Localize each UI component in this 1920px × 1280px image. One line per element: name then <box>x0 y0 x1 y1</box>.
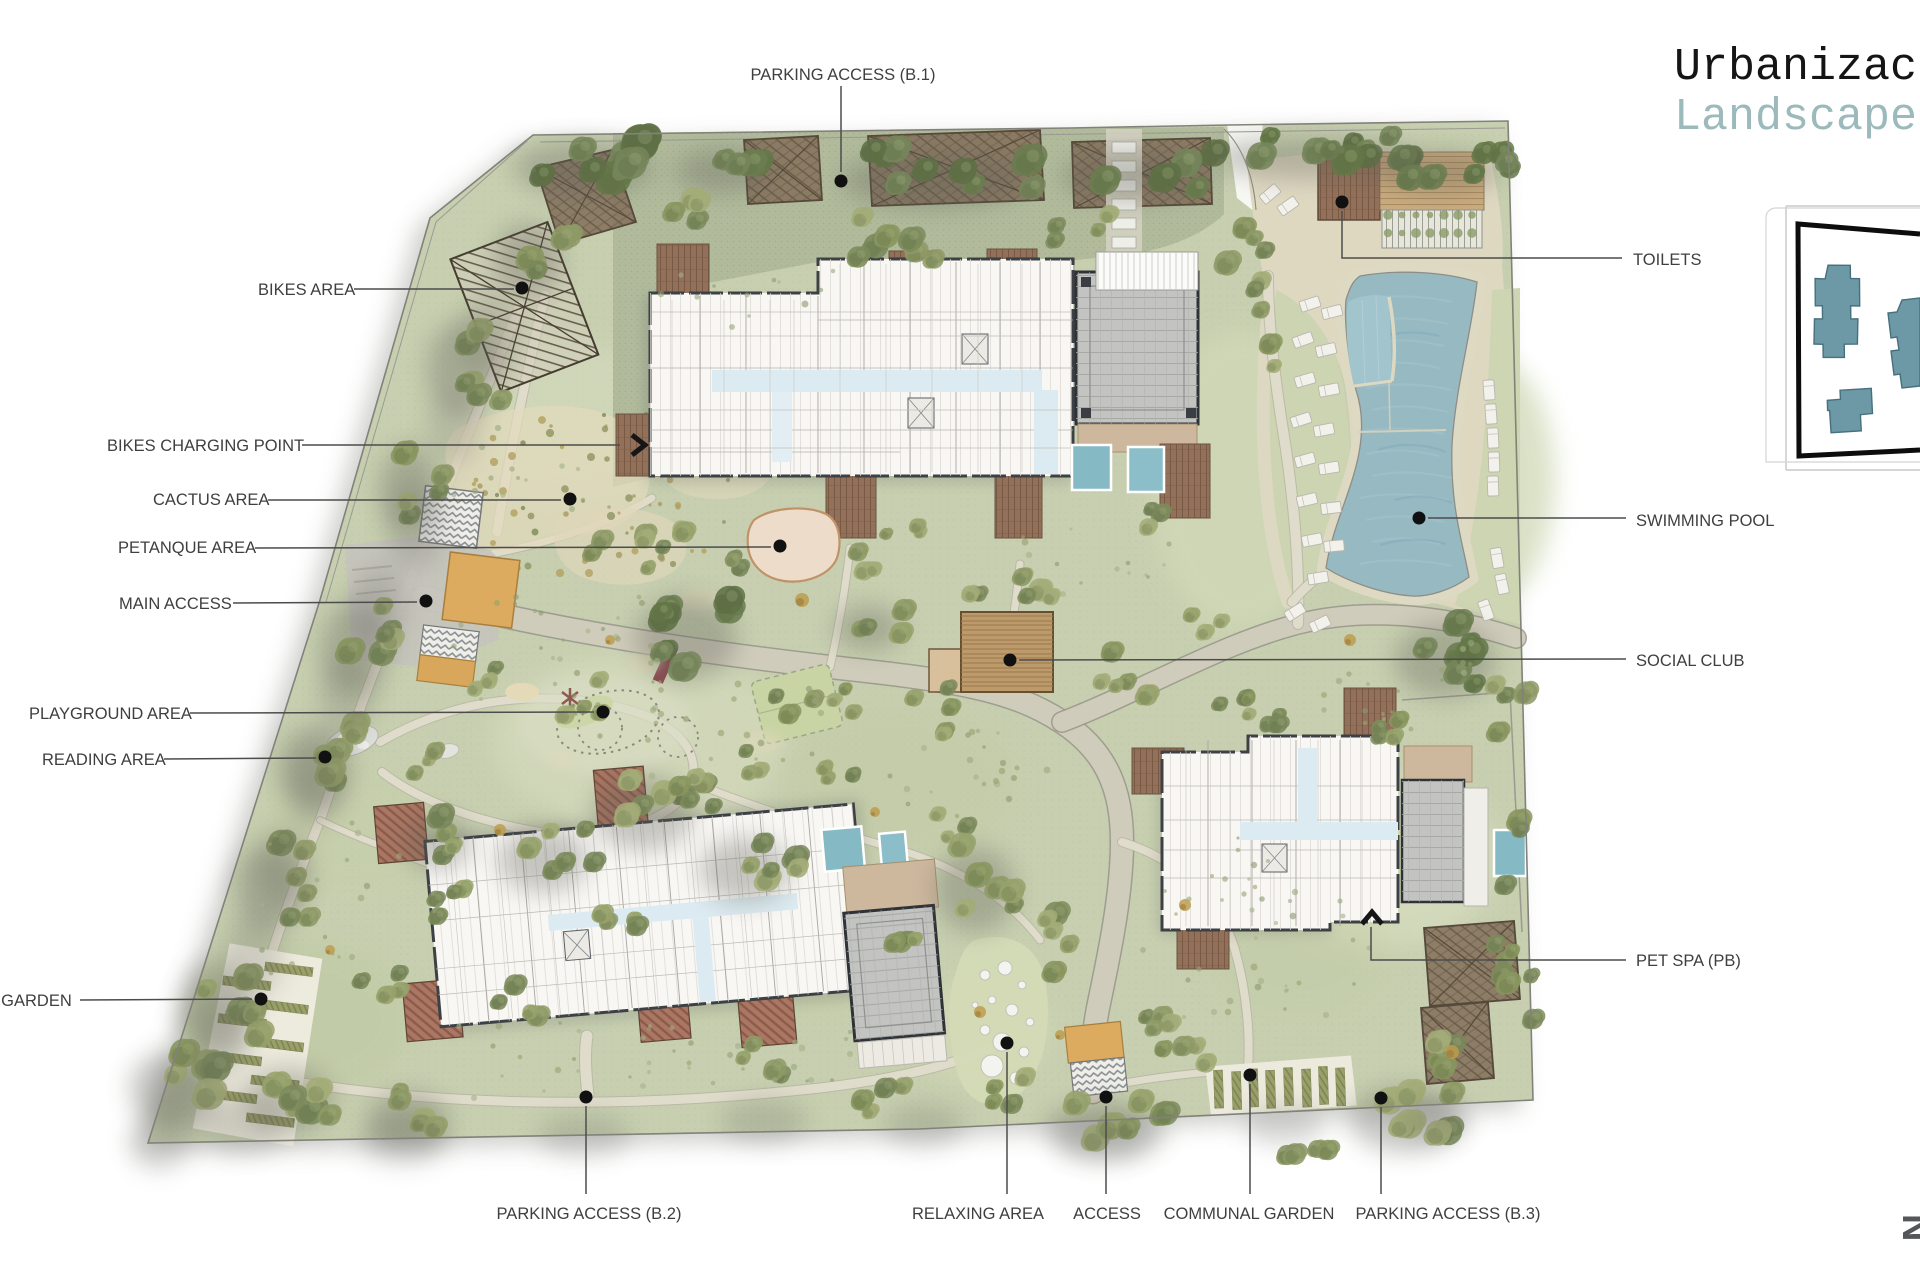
svg-text:RELAXING AREA: RELAXING AREA <box>912 1205 1044 1223</box>
svg-text:CACTUS AREA: CACTUS AREA <box>153 491 269 509</box>
svg-text:ACCESS: ACCESS <box>1073 1205 1141 1223</box>
svg-text:N: N <box>1894 1214 1920 1241</box>
svg-text:TOILETS: TOILETS <box>1633 251 1701 269</box>
svg-text:PETANQUE AREA: PETANQUE AREA <box>118 539 256 557</box>
svg-text:BIKES AREA: BIKES AREA <box>258 281 355 299</box>
svg-text:COMMUNAL GARDEN: COMMUNAL GARDEN <box>1164 1205 1335 1223</box>
svg-text:BIKES CHARGING POINT: BIKES CHARGING POINT <box>107 437 304 455</box>
svg-text:PLAYGROUND AREA: PLAYGROUND AREA <box>29 705 192 723</box>
svg-text:PET SPA (PB): PET SPA (PB) <box>1636 952 1741 970</box>
svg-text:SOCIAL CLUB: SOCIAL CLUB <box>1636 652 1745 670</box>
svg-text:PARKING ACCESS (B.2): PARKING ACCESS (B.2) <box>497 1205 682 1223</box>
svg-text:MAIN ACCESS: MAIN ACCESS <box>119 595 232 613</box>
svg-text:PARKING ACCESS (B.3): PARKING ACCESS (B.3) <box>1356 1205 1541 1223</box>
svg-text:Landscape: Landscape <box>1674 92 1917 143</box>
svg-text:PARKING ACCESS (B.1): PARKING ACCESS (B.1) <box>751 66 936 84</box>
svg-text:SWIMMING POOL: SWIMMING POOL <box>1636 512 1774 530</box>
svg-text:L GARDEN: L GARDEN <box>0 992 72 1010</box>
svg-text:Urbanizac: Urbanizac <box>1674 42 1917 93</box>
svg-text:READING AREA: READING AREA <box>42 751 166 769</box>
